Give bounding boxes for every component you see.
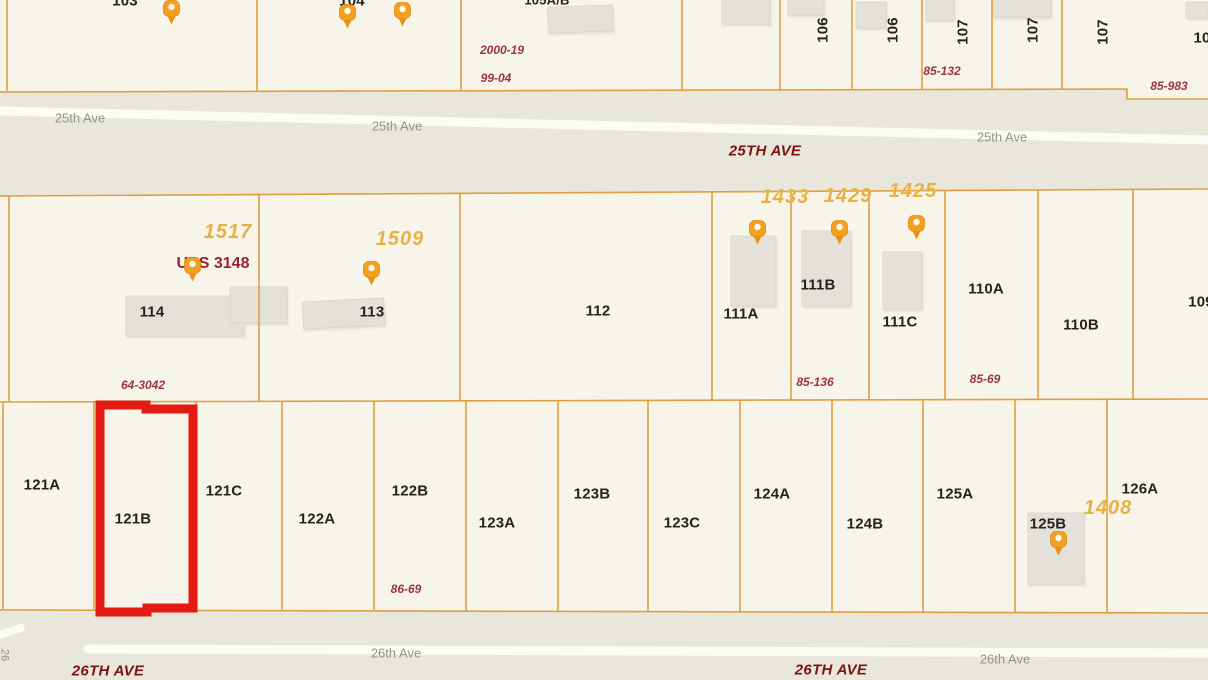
parcel-label[interactable]: 107 [956,19,971,45]
plat-reference-label: 85-983 [1150,80,1187,92]
parcel-map-canvas[interactable]: 103104105A/B1061061071071071011411311211… [0,0,1208,680]
parcel-label[interactable]: 112 [586,304,611,319]
parcel-label[interactable]: 124A [754,487,791,502]
building-footprint [722,0,770,24]
plat-reference-label: 99-04 [481,72,512,84]
map-pin-icon[interactable] [907,215,926,241]
street-name-label: 26TH AVE [795,663,867,678]
map-pin-icon[interactable] [362,261,381,287]
street-name-label-small: 25th Ave [55,112,105,125]
plat-reference-label: 2000-19 [480,44,524,56]
road-line-26th [88,649,1208,653]
parcel-label[interactable]: 111B [800,278,835,293]
road-line-stub [0,627,24,636]
parcel-label[interactable]: 121B [115,512,152,527]
edge-street-label: 26 [0,649,10,661]
parcel-label[interactable]: 121A [24,478,61,493]
plat-reference-label: 86-69 [391,583,422,595]
street-name-label-small: 25th Ave [977,131,1027,144]
map-pin-icon[interactable] [162,0,181,26]
address-number-label: 1509 [376,229,425,249]
parcel-label[interactable]: 111C [882,315,917,330]
parcel-label[interactable]: 109 [1188,295,1208,310]
plat-reference-label: 64-3042 [121,379,165,391]
building-footprint [1186,2,1208,18]
address-number-label: 1408 [1084,498,1133,518]
parcel-label[interactable]: 124B [847,517,884,532]
address-number-label: 1429 [824,186,873,206]
building-footprint [548,5,614,33]
parcel-label[interactable]: 106 [886,17,901,43]
map-pin-icon[interactable] [338,4,357,30]
parcel-label[interactable]: 107 [1026,17,1041,43]
map-base-layer [0,0,1208,680]
parcel-label[interactable]: 105A/B [524,0,569,7]
parcel-label[interactable]: 113 [360,305,385,320]
street-name-label-small: 26th Ave [980,653,1030,666]
building-footprint [788,0,824,15]
parcel-label[interactable]: 110A [968,282,1004,297]
parcel-label[interactable]: 122A [299,512,336,527]
address-number-label: 1517 [204,222,253,242]
street-name-label-small: 26th Ave [371,647,421,660]
parcel-label[interactable]: 125B [1030,517,1067,532]
parcel-label[interactable]: 121C [206,484,243,499]
parcel-label[interactable]: 106 [816,17,831,43]
parcel-label[interactable]: 111A [723,307,758,322]
building-footprint [993,0,1051,17]
street-name-label: 25TH AVE [729,144,801,159]
parcel-label[interactable]: 126A [1122,482,1159,497]
plat-reference-label: 85-132 [923,65,960,77]
building-footprint [731,236,776,306]
map-pin-icon[interactable] [393,2,412,28]
parcel-label[interactable]: 107 [1096,19,1111,45]
plat-reference-label: 85-69 [970,373,1001,385]
street-name-label: 26TH AVE [72,664,144,679]
parcel-label[interactable]: 125A [937,487,974,502]
parcel-label[interactable]: 114 [140,305,165,320]
address-number-label: 1425 [889,181,938,201]
parcel-label[interactable]: 123C [664,516,701,531]
parcel-label[interactable]: 110B [1063,318,1099,333]
map-pin-icon[interactable] [748,220,767,246]
street-name-label-small: 25th Ave [372,120,422,133]
plat-reference-label: 85-136 [796,376,833,388]
parcel-label[interactable]: 123B [574,487,611,502]
parcel-label[interactable]: 103 [112,0,138,9]
address-number-label: 1433 [761,187,810,207]
building-footprint [926,0,954,20]
parcel-label[interactable]: 10 [1193,31,1208,46]
map-pin-icon[interactable] [183,257,202,283]
map-pin-icon[interactable] [830,220,849,246]
parcel-label[interactable]: 123A [479,516,516,531]
building-footprint [883,252,922,309]
map-pin-icon[interactable] [1049,531,1068,557]
parcel-label[interactable]: 122B [392,484,429,499]
building-footprint [856,2,886,28]
